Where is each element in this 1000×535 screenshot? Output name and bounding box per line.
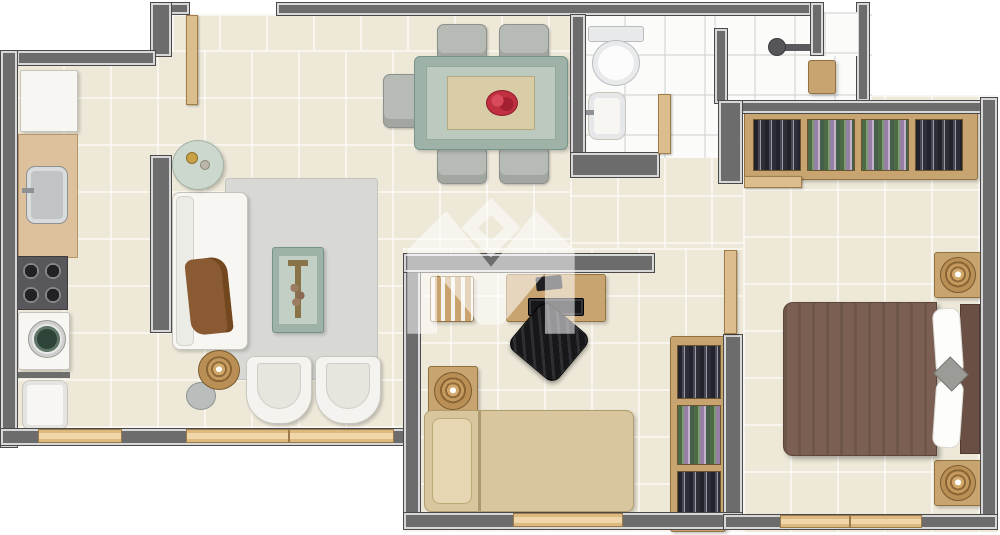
wall-office-bedroom-divider <box>723 334 743 530</box>
armchair-right <box>315 356 381 424</box>
shower-head <box>768 38 786 56</box>
master-nightstand-top-lamp <box>940 257 976 293</box>
living-window <box>186 429 394 443</box>
master-window-divider <box>849 515 851 528</box>
armchair-right-seat <box>326 363 370 409</box>
wall-top-main <box>276 2 812 16</box>
wall-living-half <box>150 155 172 333</box>
wardrobe-clothes-dark <box>915 119 963 171</box>
single-bed-fold <box>478 411 481 511</box>
watermark-logo <box>398 192 584 336</box>
dining-chair-bottom-right <box>499 146 549 184</box>
office-window <box>513 513 623 527</box>
office-wardrobe-mixed <box>677 405 721 465</box>
wall-closet-top <box>723 100 994 114</box>
master-door-leaf <box>744 176 802 188</box>
floor-plan <box>0 0 1000 535</box>
stove-burner <box>23 287 39 303</box>
wall-entry-stub-vertical <box>150 2 172 57</box>
armchair-left-seat <box>257 363 301 409</box>
wall-kitchen-top <box>16 50 156 66</box>
dining-chair-bottom-left <box>437 146 487 184</box>
single-bed-pillow <box>432 418 472 504</box>
master-bed-duvet <box>783 302 937 456</box>
stove-burner <box>45 287 61 303</box>
side-table-decor-2 <box>200 160 210 170</box>
armchair-left <box>246 356 312 424</box>
bathroom-door-leaf <box>658 94 671 154</box>
coffee-table-flowers <box>288 280 306 306</box>
office-wardrobe-dark <box>677 345 721 399</box>
kitchen-sink <box>26 166 68 224</box>
closet-wardrobe <box>744 108 978 180</box>
wardrobe-clothes-mixed <box>861 119 909 171</box>
toilet-bowl <box>592 40 640 86</box>
stove <box>16 256 68 310</box>
stove-burner <box>23 263 39 279</box>
master-nightstand-bottom-lamp <box>940 465 976 501</box>
wall-niche-left <box>810 2 824 56</box>
kitchen-faucet <box>22 188 34 193</box>
laundry-divider <box>16 372 70 378</box>
wall-left <box>0 50 18 448</box>
side-table-decor <box>186 152 198 164</box>
living-window-divider <box>288 429 290 443</box>
washing-machine-door <box>28 320 66 358</box>
floor-niche <box>824 12 858 56</box>
wardrobe-clothes-mixed <box>807 119 855 171</box>
shaft-column <box>808 60 836 94</box>
bathroom-sink <box>588 92 626 140</box>
shower-arm <box>782 44 810 51</box>
office-door-leaf <box>724 250 737 334</box>
office-nightstand-lamp <box>434 372 472 410</box>
kitchen-window <box>38 429 122 443</box>
refrigerator <box>20 70 78 132</box>
sofa-throw-blanket <box>184 256 234 336</box>
entry-door-leaf <box>186 15 198 105</box>
master-bed-pillow-bottom <box>932 379 965 449</box>
wall-right <box>980 97 998 530</box>
laundry-tank <box>22 380 68 430</box>
wall-hall-bedroom-upper <box>718 100 743 184</box>
wall-bath-shower-stub <box>714 28 728 104</box>
round-side-table <box>172 140 224 190</box>
wall-niche-right <box>856 2 870 102</box>
wall-bathroom-bottom <box>570 152 660 178</box>
master-window <box>780 515 922 528</box>
office-wardrobe <box>670 336 726 532</box>
sofa-side-lamp-table <box>198 350 240 390</box>
dining-centerpiece-flowers <box>486 90 518 116</box>
stove-burner <box>45 263 61 279</box>
wardrobe-clothes-dark <box>753 119 801 171</box>
